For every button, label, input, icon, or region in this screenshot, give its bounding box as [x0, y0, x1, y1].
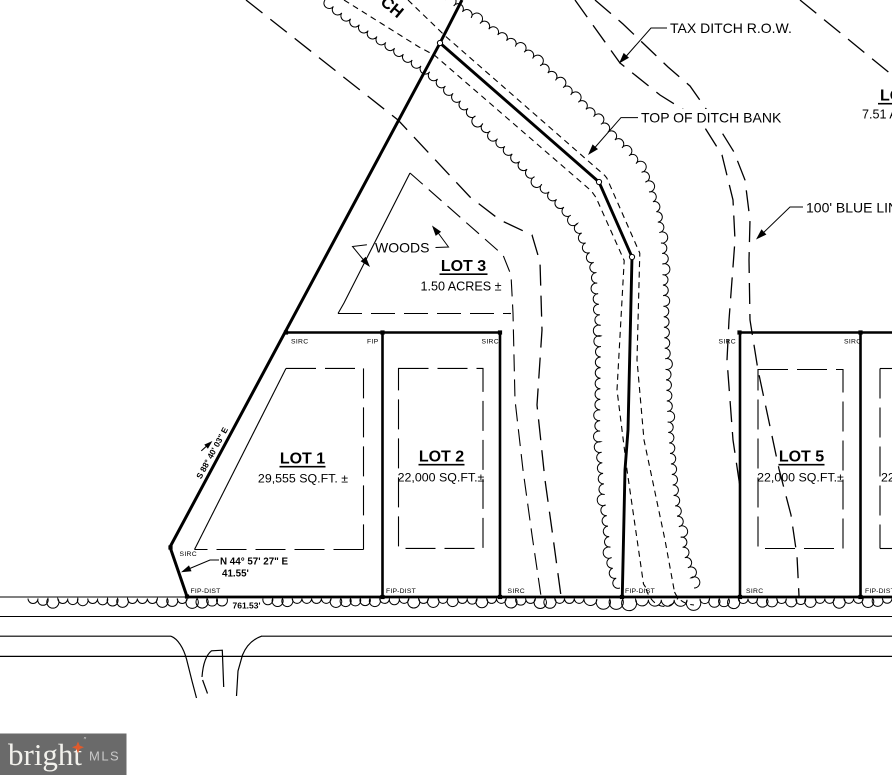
svg-text:SIRC: SIRC — [180, 551, 197, 558]
svg-text:LOT 5: LOT 5 — [779, 449, 824, 466]
svg-text:WOODS: WOODS — [375, 240, 429, 256]
svg-text:SIRC: SIRC — [291, 339, 308, 346]
svg-text:LOT 2: LOT 2 — [419, 449, 464, 466]
svg-text:22,000 SQ.FT.±: 22,000 SQ.FT.± — [757, 471, 844, 485]
svg-text:41.55': 41.55' — [222, 569, 249, 580]
svg-text:22,000 SQ.FT.±: 22,000 SQ.FT.± — [881, 471, 892, 485]
svg-text:LOT 3: LOT 3 — [441, 258, 486, 275]
svg-text:1.50 ACRES ±: 1.50 ACRES ± — [420, 280, 501, 294]
svg-text:100' BLUE LINE: 100' BLUE LINE — [806, 200, 892, 216]
svg-text:SIRC: SIRC — [746, 588, 763, 595]
svg-text:22,000 SQ.FT.±: 22,000 SQ.FT.± — [398, 471, 485, 485]
svg-text:SIRC: SIRC — [719, 339, 736, 346]
svg-text:29,555 SQ.FT. ±: 29,555 SQ.FT. ± — [258, 472, 348, 486]
svg-text:bright: bright — [8, 737, 82, 772]
svg-text:FIP-DIST: FIP-DIST — [191, 588, 221, 595]
svg-text:SIRC: SIRC — [844, 339, 861, 346]
svg-text:TOP OF DITCH BANK: TOP OF DITCH BANK — [641, 110, 782, 126]
svg-text:MLS: MLS — [89, 749, 120, 764]
svg-text:FIP-DIST: FIP-DIST — [386, 588, 416, 595]
svg-text:″: ″ — [84, 736, 87, 745]
svg-text:LOT 1: LOT 1 — [280, 451, 325, 468]
svg-text:LOT 4: LOT 4 — [880, 88, 892, 105]
svg-text:SIRC: SIRC — [482, 339, 499, 346]
svg-text:SIRC: SIRC — [508, 588, 525, 595]
svg-text:FIP-DIST: FIP-DIST — [625, 588, 655, 595]
svg-text:761.53': 761.53' — [233, 601, 261, 611]
svg-text:FIP-DIST: FIP-DIST — [865, 588, 892, 595]
svg-text:TAX DITCH R.O.W.: TAX DITCH R.O.W. — [670, 20, 792, 36]
svg-text:N 44° 57' 27" E: N 44° 57' 27" E — [220, 557, 289, 568]
svg-text:FIP: FIP — [367, 339, 379, 346]
svg-text:7.51 ACRES ±: 7.51 ACRES ± — [862, 108, 892, 122]
